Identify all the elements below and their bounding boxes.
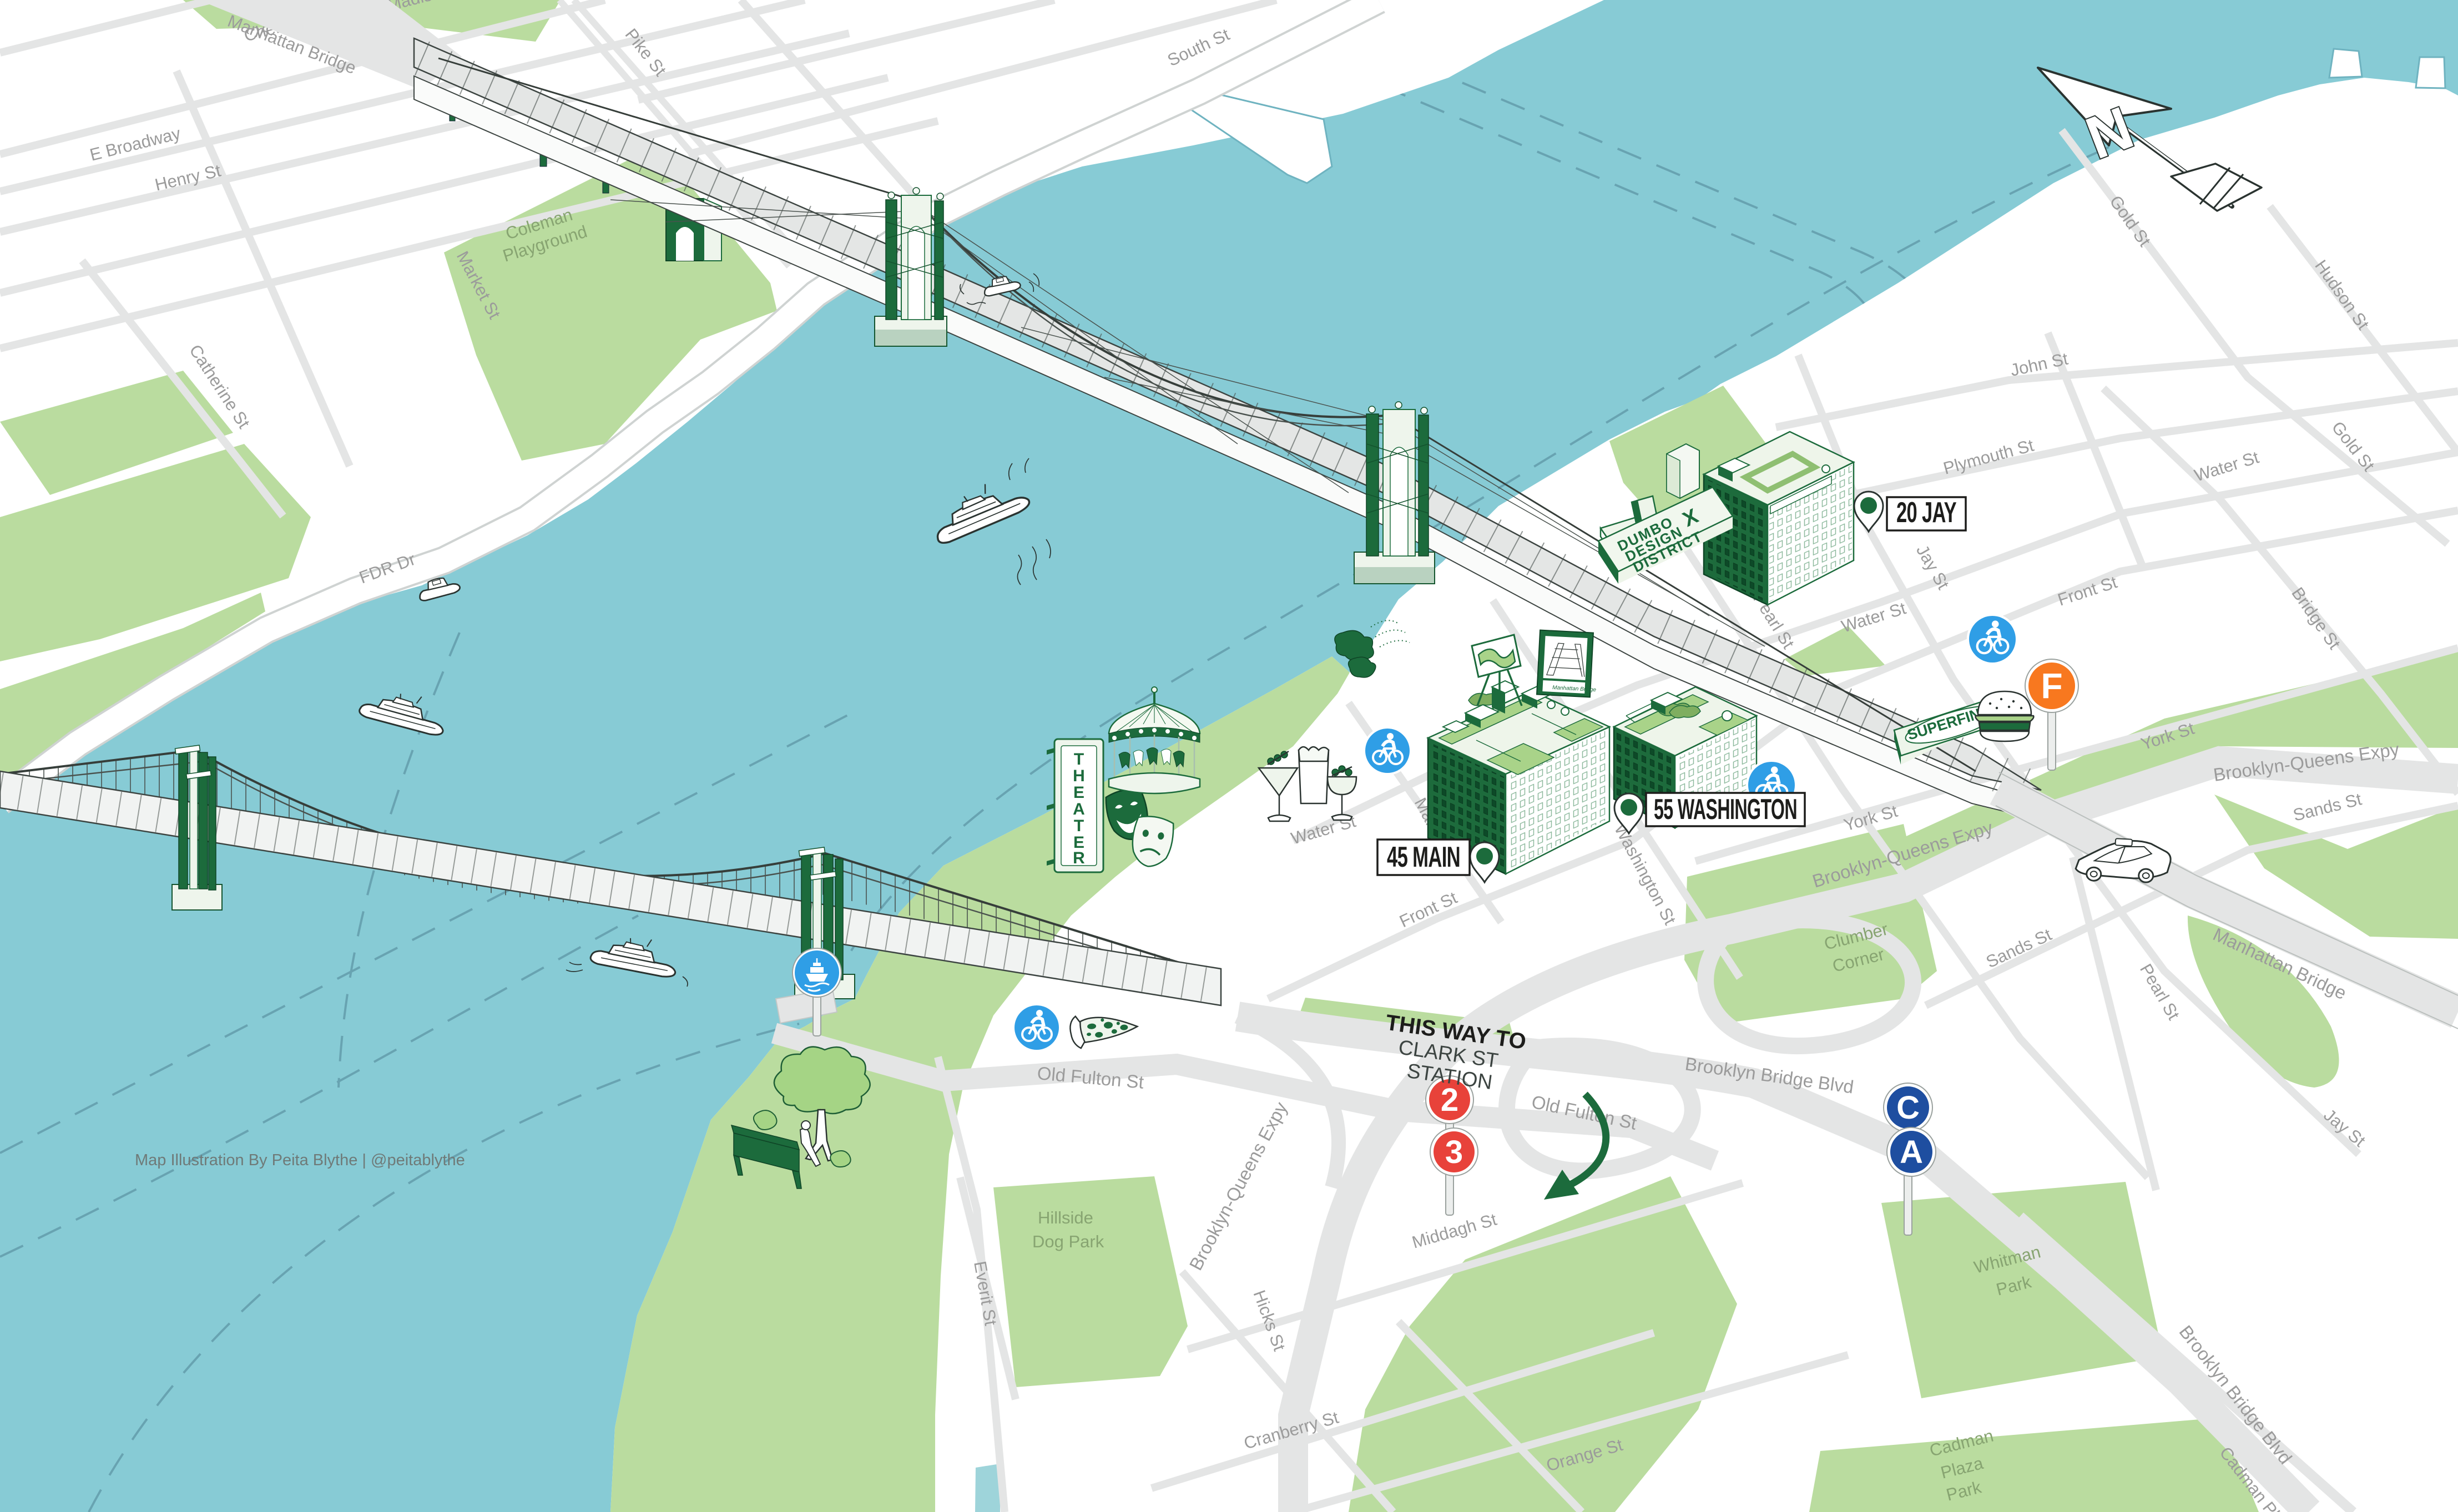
svg-text:Map Illustration By Peita Blyt: Map Illustration By Peita Blythe | @peit… xyxy=(135,1151,465,1169)
svg-text:H: H xyxy=(1073,767,1085,785)
svg-text:55 WASHINGTON: 55 WASHINGTON xyxy=(1654,793,1797,826)
svg-text:R: R xyxy=(1073,849,1085,867)
svg-text:A: A xyxy=(1900,1134,1923,1170)
svg-text:C: C xyxy=(1896,1090,1920,1126)
svg-text:45 MAIN: 45 MAIN xyxy=(1387,841,1460,873)
svg-text:A: A xyxy=(1073,800,1085,818)
svg-text:T: T xyxy=(1074,817,1084,835)
svg-text:20 JAY: 20 JAY xyxy=(1896,497,1956,529)
svg-text:F: F xyxy=(2041,666,2062,706)
svg-text:Hillside: Hillside xyxy=(1038,1208,1093,1227)
svg-text:T: T xyxy=(1074,750,1084,768)
svg-text:E: E xyxy=(1073,783,1084,802)
svg-text:3: 3 xyxy=(1445,1134,1463,1170)
svg-text:Dog Park: Dog Park xyxy=(1032,1232,1104,1251)
